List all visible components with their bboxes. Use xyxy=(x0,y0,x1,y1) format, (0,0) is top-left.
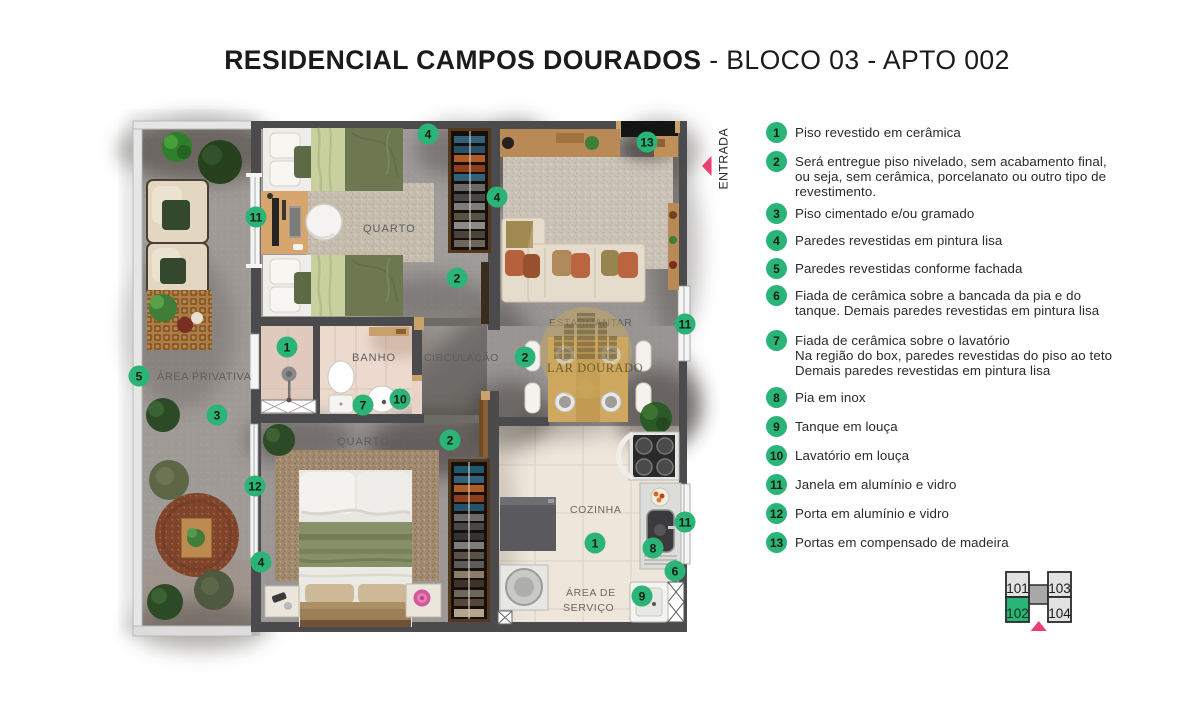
svg-text:ENTRADA: ENTRADA xyxy=(717,128,731,190)
svg-text:ÁREA DE: ÁREA DE xyxy=(566,586,616,599)
svg-text:QUARTO: QUARTO xyxy=(363,223,416,235)
svg-text:101: 101 xyxy=(1006,581,1029,596)
svg-text:10: 10 xyxy=(393,393,407,407)
svg-text:103: 103 xyxy=(1048,581,1071,596)
svg-text:CIRCULAÇÃO: CIRCULAÇÃO xyxy=(424,351,499,364)
svg-text:4: 4 xyxy=(258,556,265,570)
svg-text:LAR DOURADO: LAR DOURADO xyxy=(547,361,643,375)
svg-text:7: 7 xyxy=(360,399,367,413)
svg-text:3: 3 xyxy=(214,409,221,423)
svg-text:4: 4 xyxy=(494,191,501,205)
svg-text:4: 4 xyxy=(425,128,432,142)
svg-text:6: 6 xyxy=(672,565,679,579)
svg-text:11: 11 xyxy=(679,318,692,332)
svg-text:102: 102 xyxy=(1006,606,1029,621)
svg-text:COZINHA: COZINHA xyxy=(570,504,621,516)
svg-text:5: 5 xyxy=(136,370,143,384)
svg-text:11: 11 xyxy=(679,516,692,530)
svg-text:2: 2 xyxy=(454,272,461,286)
svg-text:1: 1 xyxy=(592,537,599,551)
svg-text:12: 12 xyxy=(248,480,262,494)
svg-text:9: 9 xyxy=(639,590,646,604)
svg-text:11: 11 xyxy=(250,211,263,225)
svg-text:104: 104 xyxy=(1048,606,1071,621)
svg-text:8: 8 xyxy=(650,542,657,556)
svg-text:2: 2 xyxy=(447,434,454,448)
svg-text:SERVIÇO: SERVIÇO xyxy=(563,602,614,614)
svg-text:ÁREA PRIVATIVA: ÁREA PRIVATIVA xyxy=(157,370,252,383)
svg-text:QUARTO: QUARTO xyxy=(337,436,390,448)
svg-text:13: 13 xyxy=(640,136,654,150)
svg-text:1: 1 xyxy=(284,341,291,355)
svg-text:2: 2 xyxy=(522,351,529,365)
svg-text:BANHO: BANHO xyxy=(352,352,396,364)
